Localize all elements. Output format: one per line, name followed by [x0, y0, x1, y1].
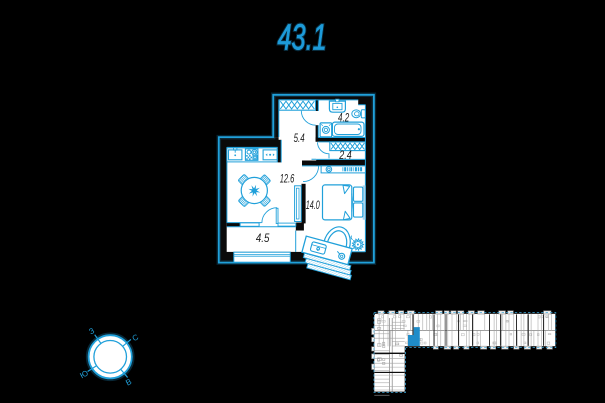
svg-text:4.5: 4.5 — [256, 231, 270, 245]
svg-text:5.4: 5.4 — [294, 132, 305, 145]
svg-text:2.4: 2.4 — [339, 149, 353, 162]
svg-text:14.0: 14.0 — [306, 199, 320, 212]
svg-text:4.2: 4.2 — [338, 111, 350, 124]
svg-text:43.1: 43.1 — [278, 17, 327, 58]
svg-text:12.6: 12.6 — [280, 172, 295, 185]
